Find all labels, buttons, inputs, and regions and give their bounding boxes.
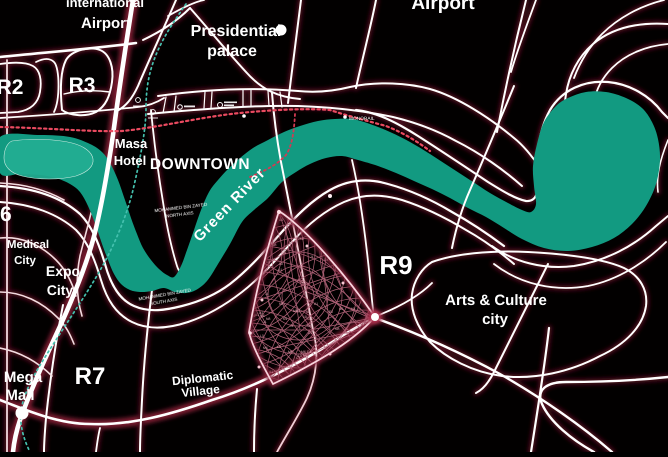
svg-text:M6: M6 [288, 350, 293, 354]
svg-text:Hotel: Hotel [114, 153, 147, 168]
svg-text:MONORAIL: MONORAIL [349, 116, 375, 122]
svg-text:E2: E2 [329, 310, 333, 314]
svg-text:Arts & Culture: Arts & Culture [445, 292, 547, 309]
svg-text:Mall: Mall [5, 387, 34, 404]
svg-text:J1: J1 [310, 255, 314, 259]
svg-text:DOWNTOWN: DOWNTOWN [150, 156, 250, 173]
svg-text:10: 10 [351, 307, 355, 311]
svg-text:Expo: Expo [46, 263, 80, 279]
svg-text:J1: J1 [290, 324, 294, 328]
svg-text:City: City [14, 255, 36, 267]
svg-text:M6: M6 [260, 314, 265, 318]
svg-text:R9: R9 [379, 250, 412, 280]
svg-text:R2: R2 [0, 76, 23, 99]
svg-text:6: 6 [0, 203, 12, 226]
svg-text:N5: N5 [339, 307, 343, 311]
svg-text:R3: R3 [69, 74, 96, 97]
svg-text:Presidential: Presidential [191, 23, 282, 40]
svg-text:Mega: Mega [4, 369, 43, 386]
svg-text:N8: N8 [266, 317, 270, 321]
svg-text:10: 10 [279, 262, 283, 266]
svg-text:K9: K9 [283, 317, 287, 321]
svg-text:M6: M6 [263, 346, 268, 350]
svg-text:N8: N8 [279, 302, 283, 306]
svg-text:Masa: Masa [115, 136, 148, 151]
svg-text:J1: J1 [272, 258, 276, 262]
svg-text:D4: D4 [307, 350, 311, 354]
svg-text:10: 10 [307, 317, 311, 321]
svg-text:palace: palace [207, 43, 257, 60]
svg-text:N8: N8 [335, 327, 339, 331]
svg-text:N5: N5 [303, 353, 307, 357]
svg-text:C7: C7 [296, 356, 300, 360]
svg-text:C7: C7 [301, 280, 305, 284]
svg-text:R7: R7 [75, 363, 106, 390]
svg-text:N8: N8 [272, 243, 276, 247]
svg-text:N8: N8 [306, 310, 310, 314]
svg-text:E2: E2 [296, 309, 300, 313]
svg-text:K9: K9 [282, 251, 286, 255]
svg-text:Medical: Medical [7, 239, 49, 251]
svg-text:C7: C7 [308, 331, 312, 335]
svg-text:City: City [47, 282, 74, 298]
svg-text:city: city [482, 311, 509, 328]
svg-text:J1: J1 [265, 292, 269, 296]
svg-text:A1: A1 [278, 268, 282, 272]
svg-text:N8: N8 [307, 324, 311, 328]
svg-text:L3: L3 [277, 345, 281, 349]
svg-text:international: international [66, 0, 144, 10]
svg-text:10: 10 [300, 237, 304, 241]
svg-text:A1: A1 [314, 302, 318, 306]
svg-text:Airport: Airport [411, 0, 475, 14]
svg-text:Airport: Airport [81, 15, 131, 32]
svg-text:L3: L3 [260, 334, 264, 338]
